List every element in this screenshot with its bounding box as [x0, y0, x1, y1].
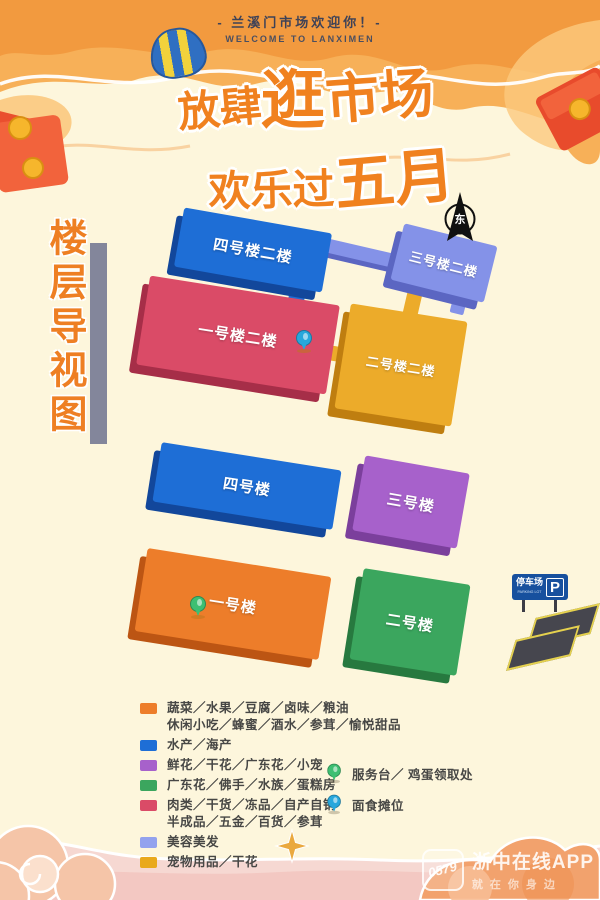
title-line1-part2: 逛 [261, 50, 325, 142]
floor-guide-vertical-title: 楼层导视图 [42, 218, 88, 438]
building-2-floor-2[interactable]: 二号楼二楼 [334, 303, 467, 426]
service-desk-pin-icon [190, 596, 207, 618]
building-label: 四号楼 [222, 472, 273, 500]
legend-text: 肉类／干货／冻品／自产自销 [167, 797, 336, 814]
legend-swatch-gold [140, 857, 157, 868]
parking-lot: 停车场 PARKING LOT P [500, 572, 600, 672]
building-4[interactable]: 四号楼 [152, 442, 341, 530]
watermark-badge-icon: 0579 [422, 849, 464, 891]
marker-legend: 服务台／ 鸡蛋领取处 面食摊位 [326, 762, 473, 824]
marker-row-noodle-stall: 面食摊位 [326, 793, 473, 815]
legend-text: 水产／海产 [167, 737, 232, 754]
legend-text: 半成品／五金／百货／参茸 [167, 814, 336, 831]
building-label: 二号楼二楼 [365, 350, 437, 380]
legend-row-orange: 蔬菜／水果／豆腐／卤味／粮油 休闲小吃／蜂蜜／酒水／参茸／愉悦甜品 [140, 700, 490, 734]
sign-post [522, 600, 525, 612]
header: - 兰溪门市场欢迎你！- WELCOME TO LANXIMEN [0, 12, 600, 44]
marker-row-service-desk: 服务台／ 鸡蛋领取处 [326, 762, 473, 784]
parking-sign-en: PARKING LOT [517, 587, 541, 595]
compass-east: 东 [440, 190, 480, 246]
watermark-slogan: 就在你身边 [472, 876, 594, 892]
welcome-text-en: WELCOME TO LANXIMEN [0, 34, 600, 44]
building-label: 三号楼二楼 [408, 245, 481, 280]
title-line2-part2: 五月 [330, 126, 457, 223]
legend-text: 广东花／佛手／水族／蛋糕房 [167, 777, 336, 794]
legend-text: 休闲小吃／蜂蜜／酒水／参茸／愉悦甜品 [167, 717, 401, 734]
legend-text: 鲜花／干花／广东花／小宠 [167, 757, 323, 774]
marker-label: 面食摊位 [352, 795, 404, 814]
watermark-app-name: 浙中在线APP [472, 847, 594, 874]
legend-swatch-blue [140, 740, 157, 751]
building-label: 三号楼 [386, 487, 437, 516]
service-desk-pin-icon [327, 764, 341, 783]
title-line1-part1: 放肆 [175, 72, 264, 140]
noodle-stall-pin-icon [327, 795, 341, 814]
building-label: 二号楼 [385, 608, 436, 636]
sign-post [554, 600, 557, 612]
poster-root: - 兰溪门市场欢迎你！- WELCOME TO LANXIMEN 放肆 逛 市场… [0, 0, 600, 900]
pink-swirl-cloud [0, 826, 115, 900]
legend-swatch-green [140, 780, 157, 791]
welcome-text-cn: - 兰溪门市场欢迎你！- [0, 12, 600, 31]
side-title-bar [90, 243, 107, 444]
building-label: 一号楼二楼 [197, 318, 279, 351]
parking-sign-cn: 停车场 [516, 577, 543, 587]
legend-swatch-crimson [140, 800, 157, 811]
legend-swatch-purple [140, 760, 157, 771]
watermark-logo: 0579 浙中在线APP 就在你身边 [422, 847, 594, 892]
legend-text: 蔬菜／水果／豆腐／卤味／粮油 [167, 700, 401, 717]
legend-swatch-periwinkle [140, 837, 157, 848]
red-envelopes-left [0, 106, 69, 193]
building-2[interactable]: 二号楼 [349, 568, 470, 676]
legend-swatch-orange [140, 703, 157, 714]
compass-label: 东 [455, 212, 466, 226]
marker-label: 服务台／ 鸡蛋领取处 [352, 764, 473, 783]
watermark-badge-text: 0579 [427, 859, 459, 881]
title-line1-part3: 市场 [322, 48, 435, 134]
building-1[interactable]: 一号楼 [135, 548, 332, 660]
building-3[interactable]: 三号楼 [352, 455, 470, 548]
legend-text: 美容美发 [167, 834, 219, 851]
noodle-stall-pin-icon [296, 330, 313, 352]
building-label: 四号楼二楼 [212, 233, 294, 268]
parking-sign: 停车场 PARKING LOT P [512, 574, 568, 600]
legend-row-blue: 水产／海产 [140, 737, 490, 754]
parking-p-icon: P [546, 578, 564, 597]
title-line2-part1: 欢乐过 [208, 156, 335, 219]
legend-text: 宠物用品／干花 [167, 854, 258, 871]
building-label: 一号楼 [208, 590, 259, 618]
